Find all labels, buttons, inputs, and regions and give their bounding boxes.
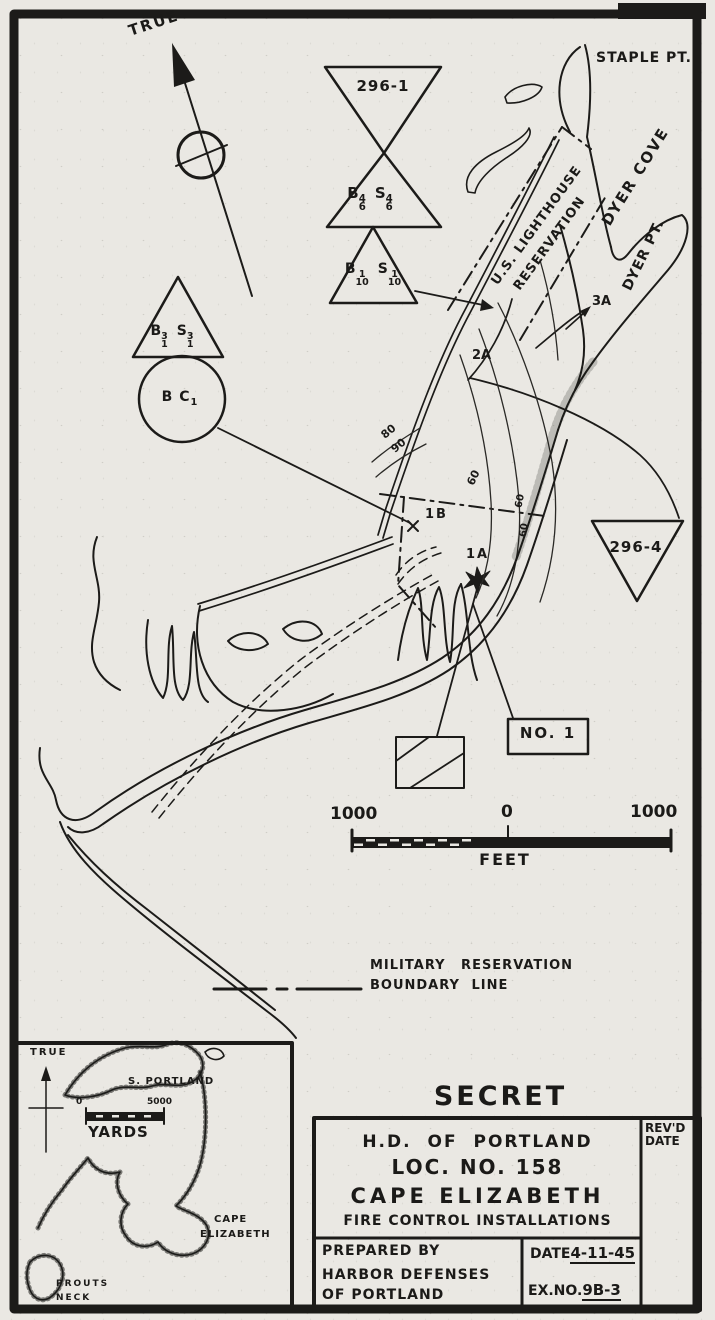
station-letter: S bbox=[375, 184, 386, 202]
north-arrow-head bbox=[172, 43, 195, 87]
military-boundary-lines bbox=[380, 494, 545, 629]
legend-line-1: MILITARY RESERVATION bbox=[370, 959, 573, 973]
classification-label: SECRET bbox=[428, 1083, 573, 1111]
harbor-defenses-label: HARBOR DEFENSES bbox=[322, 1268, 490, 1283]
leader-arrowhead bbox=[480, 299, 494, 311]
coastline-path bbox=[146, 620, 208, 702]
title-hd-of-portland: H.D. OF PORTLAND bbox=[314, 1134, 641, 1152]
triangle-symbol-296-4 bbox=[592, 521, 683, 601]
ex-no-row: EX.NO.9B-3 bbox=[528, 1283, 621, 1299]
no1-box-label: NO. 1 bbox=[508, 726, 588, 742]
dashed-road bbox=[396, 547, 436, 575]
title-cape-elizabeth: CAPE ELIZABETH bbox=[314, 1185, 641, 1207]
station-1a-star bbox=[464, 567, 490, 594]
scale-unit-label: FEET bbox=[455, 852, 555, 869]
title-loc-no: LOC. NO. 158 bbox=[314, 1157, 641, 1178]
building-hatch bbox=[410, 753, 464, 788]
station-1a-label: 1A bbox=[466, 548, 489, 562]
scanned-map-page: TRUE STAPLE PT. DYER COVE DYER PT. U.S. … bbox=[0, 0, 715, 1320]
no1-leader-line bbox=[473, 604, 513, 718]
inset-prouts-label-1: PROUTS bbox=[56, 1280, 109, 1289]
coastline-path bbox=[560, 225, 584, 390]
road bbox=[199, 544, 393, 611]
road bbox=[468, 299, 512, 380]
pond bbox=[505, 84, 542, 103]
scale-right-label: 1000 bbox=[630, 804, 677, 822]
inset-scale-max: 5000 bbox=[147, 1098, 172, 1107]
inset-prouts-label-2: NECK bbox=[56, 1294, 91, 1303]
station-letter: B bbox=[345, 261, 356, 277]
station-3a-label: 3A bbox=[592, 295, 611, 309]
coastline-path bbox=[558, 215, 687, 430]
bc-circle-text: B C1 bbox=[140, 390, 220, 408]
prepared-by-label: PREPARED BY bbox=[322, 1244, 440, 1259]
triangle10-station-text: B110S110 bbox=[333, 262, 413, 287]
hatched-building-symbol bbox=[396, 737, 464, 788]
triangle-296-4-label: 296-4 bbox=[596, 540, 676, 556]
title-fire-control: FIRE CONTROL INSTALLATIONS bbox=[314, 1214, 641, 1229]
north-arrow-crossline bbox=[176, 145, 227, 166]
building-hatch bbox=[396, 737, 429, 761]
coastline-path bbox=[197, 606, 333, 711]
inset-north-arrow bbox=[29, 1066, 63, 1152]
station-letter: S bbox=[177, 323, 187, 339]
staple-pt-label: STAPLE PT. bbox=[596, 51, 692, 66]
inset-s-portland-label: S. PORTLAND bbox=[128, 1077, 214, 1088]
date-label: DATE bbox=[530, 1246, 570, 1262]
date-value: 4-11-45 bbox=[570, 1244, 635, 1264]
inset-cape-label-2: ELIZABETH bbox=[200, 1230, 271, 1241]
inset-scale-zero: 0 bbox=[76, 1098, 82, 1107]
station-letter: B bbox=[347, 184, 358, 202]
islet bbox=[283, 622, 322, 641]
coastline-path bbox=[39, 430, 558, 820]
legend-line-2: BOUNDARY LINE bbox=[370, 979, 508, 993]
map-frame-notch bbox=[618, 3, 706, 19]
contour-label-60: 60 bbox=[519, 523, 531, 538]
station-2a-label: 2A bbox=[472, 349, 491, 363]
road bbox=[536, 313, 580, 348]
station-letter: B C bbox=[162, 389, 191, 405]
inset-scale-bar bbox=[86, 1108, 164, 1124]
date-row: DATE4-11-45 bbox=[530, 1246, 635, 1262]
inset-north-head bbox=[41, 1066, 51, 1081]
triangle-leader-line bbox=[415, 291, 483, 305]
inset-coast-hachure bbox=[65, 1043, 203, 1098]
inset-scale-unit: YARDS bbox=[88, 1125, 149, 1141]
bc-leader-line bbox=[218, 428, 410, 523]
pond bbox=[467, 128, 531, 193]
scale-bar bbox=[352, 826, 672, 851]
scale-left-label: 1000 bbox=[330, 806, 377, 824]
revd-date-label: DATE bbox=[645, 1135, 685, 1148]
north-arrow bbox=[172, 43, 252, 296]
station-letter: S bbox=[378, 261, 388, 277]
north-arrow-shaft bbox=[184, 80, 252, 296]
bowtie-number-label: 296-1 bbox=[343, 79, 423, 95]
coastline-path bbox=[60, 822, 296, 1038]
scale-bar-body bbox=[352, 837, 672, 848]
coastline-path bbox=[68, 835, 275, 1010]
contour bbox=[540, 260, 558, 360]
ex-no-label: EX.NO. bbox=[528, 1283, 582, 1299]
islet bbox=[228, 633, 268, 650]
coastline-path bbox=[559, 47, 580, 132]
x-mark-1b bbox=[408, 521, 418, 531]
ex-no-value: 9B-3 bbox=[582, 1281, 621, 1301]
station-1b-label: 1B bbox=[425, 508, 448, 522]
inset-true-label: TRUE bbox=[30, 1048, 67, 1059]
coastline-path bbox=[92, 537, 120, 690]
of-portland-label: OF PORTLAND bbox=[322, 1288, 444, 1303]
inset-cape-label-1: CAPE bbox=[214, 1215, 247, 1226]
revd-date-header: REV'D DATE bbox=[645, 1122, 685, 1148]
inset-islet bbox=[205, 1049, 224, 1060]
road bbox=[198, 537, 392, 604]
inset-coast-hachure bbox=[38, 1072, 209, 1255]
scale-zero-label: 0 bbox=[501, 804, 513, 822]
dashed-roads bbox=[152, 547, 441, 818]
dashed-road bbox=[398, 553, 441, 584]
bowtie-station-text: B46S46 bbox=[330, 186, 410, 213]
building-outline bbox=[396, 737, 464, 788]
triangle1-station-text: B31S31 bbox=[132, 324, 212, 349]
station-letter: B bbox=[150, 323, 161, 339]
